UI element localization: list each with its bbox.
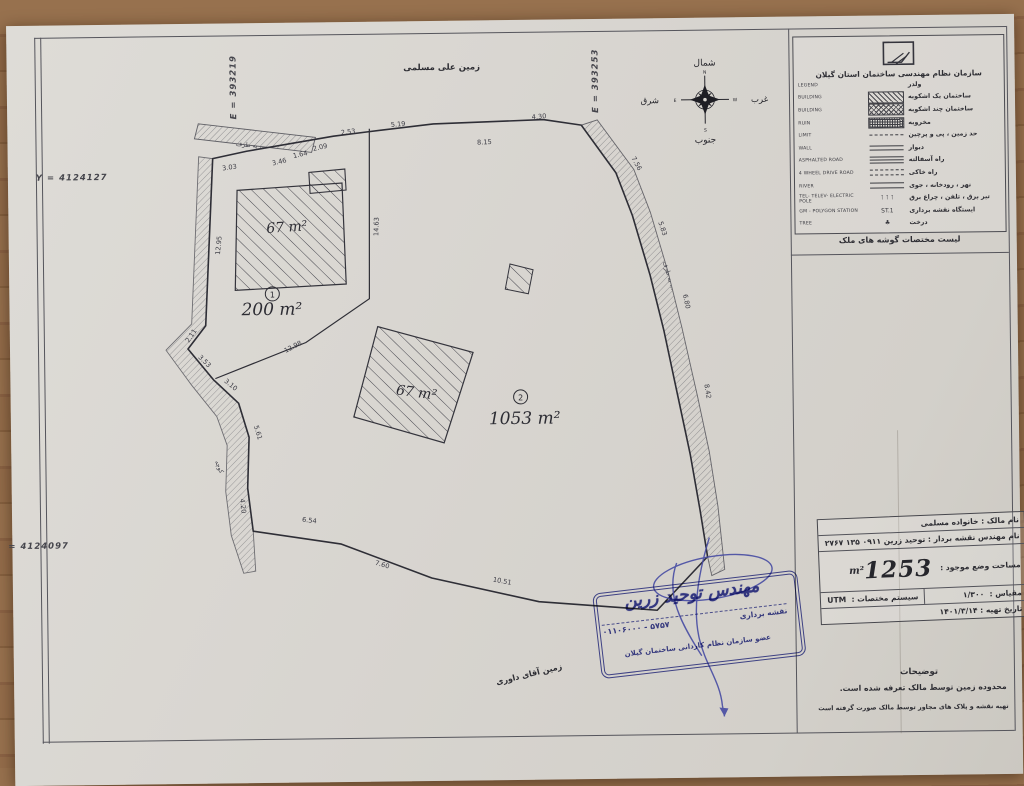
measurement-label: 6.54 — [302, 516, 317, 526]
legend-label-en: GM - POLYGON STATION — [799, 208, 865, 214]
coordsys-value: UTM — [827, 595, 846, 605]
dash-dot-icon — [869, 134, 903, 135]
road-label: به طرف ... — [236, 141, 266, 151]
small-structure — [505, 264, 533, 294]
measurement-label: 3.03 — [222, 162, 238, 172]
legend-rows: LEGENDولدرBUILDINGساختمان یک اشکوبهBUILD… — [794, 77, 1006, 231]
coordinate-y-bottom: = 4124097 — [8, 541, 69, 552]
measurement-label: 14.63 — [372, 217, 380, 236]
svg-text:شمال: شمال — [693, 58, 715, 68]
diagonal-hatch-icon — [868, 91, 904, 103]
legend-label-fa: راه آسفالته — [909, 155, 1001, 163]
measurement-label: 12.98 — [283, 339, 303, 355]
svg-text:1053 m²: 1053 m² — [489, 408, 561, 429]
legend-label-fa: حد زمین ، پی و پرچین — [908, 130, 1000, 138]
date-value: ۱۴۰۱/۳/۱۴ — [939, 606, 977, 617]
dashed-lines-icon — [870, 170, 904, 176]
measurement-label: 4.30 — [531, 112, 546, 121]
dashed-lines-symbol — [865, 170, 909, 177]
date-label: تاریخ تهیه : — [980, 604, 1023, 615]
survey-map-paper: 67 m² 1 200 m² 67 m² 2 1053 m² N S E W ش… — [6, 14, 1023, 786]
svg-text:N: N — [703, 70, 706, 76]
measurement-label: 8.15 — [477, 138, 492, 147]
measurement-label: 2.09 — [312, 142, 328, 153]
legend-label-en: TEL- TELEV- ELECTRIC POLE — [799, 193, 865, 204]
legend-label-fa: ایستگاه نقشه برداری — [909, 206, 1001, 214]
coordinate-e-right: E = 393253 — [590, 49, 601, 113]
measurement-label: 10.51 — [492, 576, 512, 587]
legend-label-fa: مخروبه — [908, 118, 1000, 126]
coordsys-label: سیستم مختصات : — [851, 592, 918, 604]
svg-text:جنوب: جنوب — [695, 135, 717, 145]
legend-label-fa: ساختمان چند اشکوبه — [908, 105, 1000, 113]
svg-text:E: E — [674, 98, 677, 104]
svg-text:W: W — [733, 97, 738, 103]
svg-text:67 m²: 67 m² — [266, 218, 308, 237]
triple-line-icon — [870, 157, 904, 164]
road-right — [581, 118, 725, 577]
none-symbol — [864, 84, 908, 85]
measurement-label: 4.20 — [238, 498, 248, 514]
triple-line-symbol — [865, 156, 909, 164]
dash-dot-symbol — [864, 134, 908, 136]
area-label: مساحت وضع موجود : — [940, 560, 1021, 572]
legend-label-en: WALL — [799, 145, 865, 151]
legend-label-en: TREE — [799, 221, 865, 227]
legend-label-en: ASPHALTED ROAD — [799, 158, 865, 164]
station-symbol: ST.1 — [865, 207, 909, 215]
measurement-label: 7.60 — [374, 559, 390, 571]
poles-icon: ⊺ ⊺ ⊺ — [870, 194, 904, 201]
measurement-label: 5.61 — [252, 424, 264, 440]
cross-hatch-icon — [868, 104, 904, 116]
legend-label-en: LIMIT — [798, 133, 864, 139]
measurement-label: 12.95 — [214, 236, 224, 256]
poles-symbol: ⊺ ⊺ ⊺ — [865, 194, 909, 202]
legend-label-fa: نهر ، رودخانه ، جوی — [909, 181, 1001, 189]
dense-hatch-icon — [868, 117, 904, 128]
diagonal-hatch-symbol — [864, 91, 908, 104]
measurement-label: 2.53 — [340, 127, 356, 137]
svg-text:غرب: غرب — [751, 95, 769, 105]
river-lines-icon — [870, 182, 904, 188]
owner-label: نام مالک : — [981, 515, 1019, 526]
tree-symbol: ♣ — [865, 219, 909, 227]
station-icon: ST.1 — [870, 207, 904, 214]
coordinate-e-left: E = 393219 — [228, 55, 239, 119]
legend-label-en: LEGEND — [798, 82, 864, 88]
svg-text:2: 2 — [518, 393, 523, 402]
measurement-label: 5.83 — [656, 220, 668, 236]
tree-icon: ♣ — [870, 220, 904, 227]
measurement-label: 8.42 — [702, 383, 712, 399]
legend-row: TREE♣درخت — [795, 215, 1005, 230]
area-value: 1253 — [864, 554, 933, 584]
notes-title: توضیحات — [844, 666, 994, 678]
compass-rose: N S E W شمال جنوب شرق غرب — [640, 58, 769, 147]
legend-box: سازمان نظام مهندسی ساختمان استان گیلان L… — [792, 34, 1006, 235]
svg-text:شرق: شرق — [641, 96, 660, 106]
legend-label-en: BUILDING — [798, 108, 864, 114]
legend-label-fa: دیوار — [909, 143, 1001, 151]
north-neighbour-label: زمین علی مسلمی — [387, 62, 497, 73]
legend-label-fa: ساختمان یک اشکوبه — [908, 92, 1000, 100]
legend-label-en: 4 WHEEL DRIVE ROAD — [799, 171, 865, 177]
legend-label-en: RUIN — [798, 120, 864, 126]
property-info-table: نام مالک : خانواده مسلمی نام مهندس نقشه … — [817, 511, 1024, 625]
scale-value: ۱/۳۰۰ — [963, 590, 985, 600]
engineer-label: نام مهندس نقشه بردار : — [928, 531, 1020, 544]
area-unit: m² — [849, 565, 864, 577]
engineer-value: توحید زرین ۰۹۱۱ ۱۳۵ ۲۷۶۷ — [825, 535, 926, 548]
legend-label-fa: ولدر — [908, 80, 1000, 88]
engineering-organization-logo — [879, 40, 917, 68]
road-label: کوچه — [213, 460, 225, 475]
cross-hatch-symbol — [864, 104, 908, 117]
measurement-label: 6.80 — [681, 293, 692, 309]
double-line-icon — [870, 145, 904, 150]
scale-label: مقیاس : — [989, 588, 1022, 598]
legend-label-fa: راه خاکی — [909, 168, 1001, 176]
legend-label-fa: درخت — [909, 218, 1001, 226]
legend-label-fa: تیر برق ، تلفن ، چراغ برق — [909, 193, 1001, 201]
measurement-label: 3.46 — [271, 156, 287, 167]
svg-text:200 m²: 200 m² — [240, 300, 302, 321]
svg-text:S: S — [704, 128, 707, 134]
double-line-symbol — [865, 145, 909, 151]
owner-value: خانواده مسلمی — [920, 517, 978, 528]
river-lines-symbol — [865, 182, 909, 189]
svg-text:1: 1 — [270, 290, 275, 299]
legend-label-en: BUILDING — [798, 95, 864, 101]
measurement-label: 5.19 — [390, 120, 405, 129]
coordinate-y-top: Y = 4124127 — [36, 173, 108, 184]
legend-label-en: RIVER — [799, 183, 865, 189]
dense-hatch-symbol — [864, 117, 908, 129]
